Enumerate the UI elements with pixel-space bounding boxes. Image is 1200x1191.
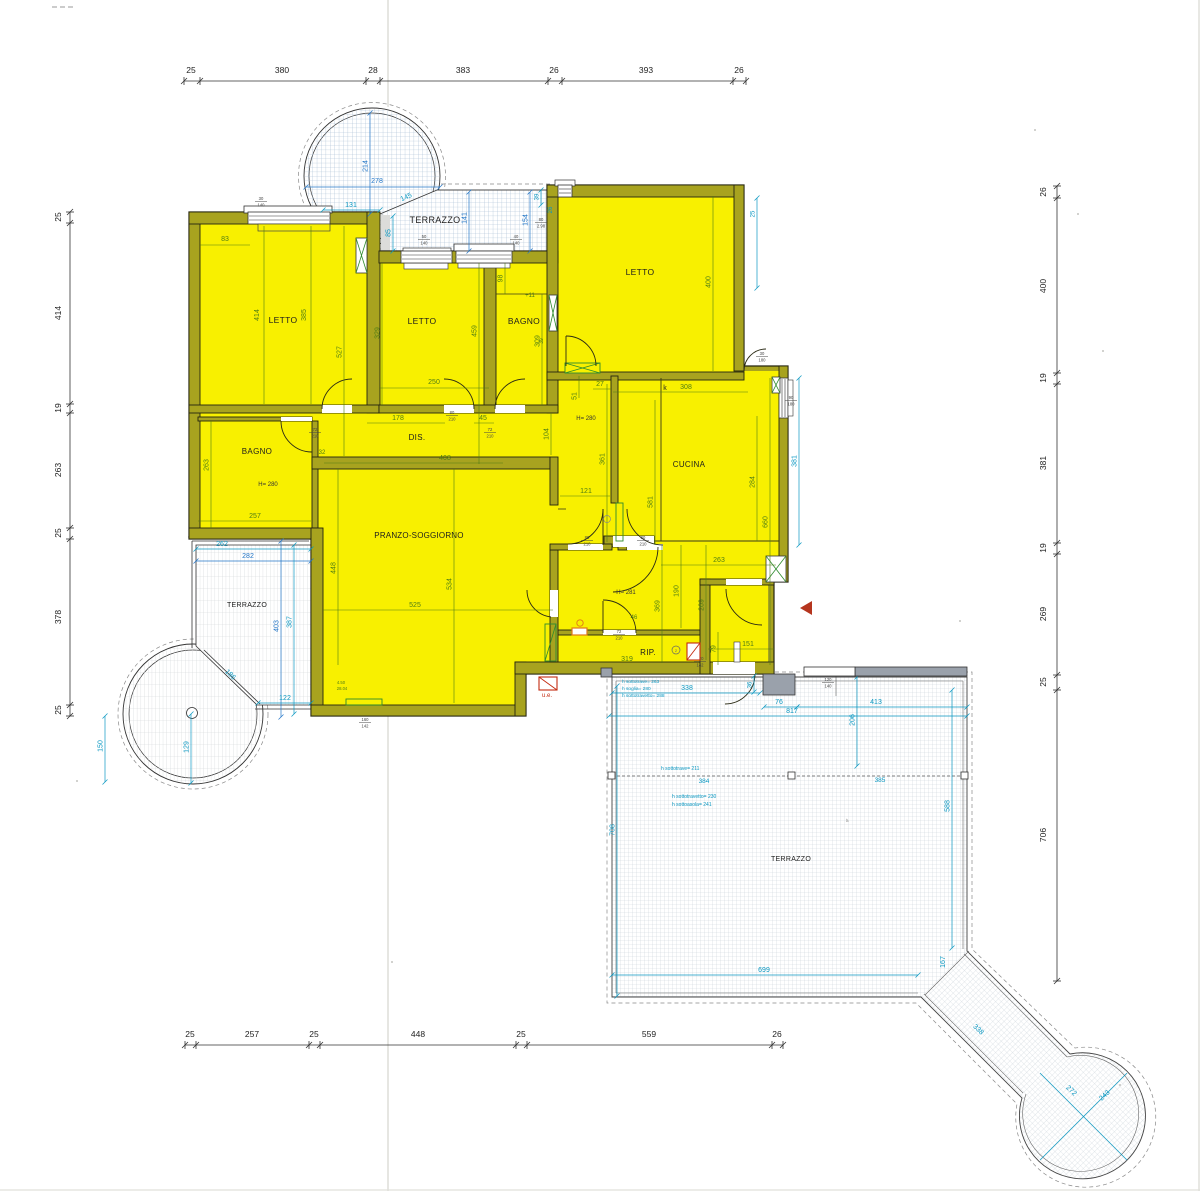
svg-text:79: 79	[711, 645, 718, 653]
svg-text:40: 40	[514, 234, 519, 239]
svg-text:4.50: 4.50	[337, 680, 346, 685]
svg-text:19: 19	[1038, 543, 1048, 553]
svg-text:206: 206	[850, 714, 857, 726]
svg-text:129: 129	[184, 741, 191, 753]
svg-text:RIP.: RIP.	[640, 648, 656, 657]
svg-text:25: 25	[1038, 677, 1048, 687]
svg-text:32: 32	[319, 450, 326, 456]
svg-text:DIS.: DIS.	[409, 433, 426, 442]
svg-text:660: 660	[763, 516, 770, 528]
svg-text:403: 403	[274, 620, 281, 632]
svg-text:26: 26	[734, 65, 744, 75]
svg-text:121: 121	[580, 488, 592, 495]
svg-text:180: 180	[788, 402, 796, 407]
svg-text:h sottotravetto= 288: h sottotravetto= 288	[622, 693, 665, 699]
svg-text:381: 381	[1038, 456, 1048, 470]
svg-text:25: 25	[53, 528, 63, 538]
svg-text:90: 90	[789, 395, 794, 400]
svg-text:527: 527	[337, 346, 344, 358]
svg-text:151: 151	[742, 641, 754, 648]
svg-text:25: 25	[53, 212, 63, 222]
svg-text:25: 25	[186, 65, 196, 75]
svg-text:361: 361	[600, 453, 607, 465]
svg-text:408: 408	[439, 455, 451, 462]
svg-text:160: 160	[362, 717, 370, 722]
svg-text:h sottotrave= 211: h sottotrave= 211	[661, 766, 700, 772]
svg-text:PRANZO-SOGGIORNO: PRANZO-SOGGIORNO	[374, 531, 463, 540]
svg-text:50: 50	[422, 234, 427, 239]
svg-text:150: 150	[98, 740, 105, 752]
svg-text:400: 400	[706, 276, 713, 288]
svg-text:80: 80	[585, 535, 590, 540]
svg-text:140: 140	[421, 241, 429, 246]
svg-text:214: 214	[363, 160, 370, 172]
svg-text:140: 140	[825, 684, 833, 689]
svg-text:CUCINA: CUCINA	[673, 460, 706, 469]
svg-text:448: 448	[331, 562, 338, 574]
svg-text:178: 178	[392, 415, 404, 422]
svg-text:80: 80	[641, 535, 646, 540]
svg-text:385: 385	[301, 309, 308, 321]
svg-text:210: 210	[449, 417, 457, 422]
svg-text:122: 122	[279, 695, 291, 702]
svg-text:30: 30	[760, 351, 765, 356]
svg-text:309: 309	[535, 335, 542, 347]
svg-text:104: 104	[544, 428, 551, 440]
svg-text:319: 319	[621, 656, 633, 663]
svg-text:381: 381	[792, 455, 799, 467]
svg-text:414: 414	[254, 309, 261, 321]
svg-text:142: 142	[362, 724, 370, 729]
svg-text:LETTO: LETTO	[269, 315, 298, 325]
svg-text:250: 250	[428, 379, 440, 386]
svg-text:706: 706	[1038, 828, 1048, 842]
svg-text:263: 263	[204, 459, 211, 471]
svg-text:80: 80	[450, 410, 455, 415]
svg-text:76: 76	[775, 699, 783, 706]
svg-text:45: 45	[479, 415, 487, 422]
svg-text:H= 280: H= 280	[258, 482, 278, 488]
svg-text:83: 83	[221, 236, 229, 243]
svg-text:387: 387	[287, 616, 294, 628]
svg-text:284: 284	[750, 476, 757, 488]
svg-text:26: 26	[1038, 187, 1048, 197]
svg-text:282: 282	[242, 553, 254, 560]
svg-text:2.98: 2.98	[537, 224, 546, 229]
svg-text:385: 385	[875, 777, 886, 784]
svg-text:154: 154	[523, 214, 530, 226]
svg-text:263: 263	[53, 463, 63, 477]
svg-text:36: 36	[748, 681, 754, 688]
svg-text:27: 27	[596, 381, 604, 388]
svg-text:25: 25	[751, 210, 757, 217]
svg-text:51: 51	[572, 392, 579, 400]
svg-text:80: 80	[539, 217, 544, 222]
svg-text:459: 459	[472, 325, 479, 337]
svg-text:72: 72	[488, 427, 493, 432]
svg-text:19: 19	[53, 403, 63, 413]
svg-text:H= 281: H= 281	[616, 590, 636, 596]
svg-text:413: 413	[870, 699, 882, 706]
svg-text:h sottoasola= 241: h sottoasola= 241	[672, 802, 712, 808]
svg-text:338: 338	[681, 685, 693, 692]
svg-text:85: 85	[386, 229, 393, 237]
svg-text:329: 329	[375, 327, 382, 339]
svg-text:708: 708	[610, 824, 617, 836]
svg-text:46: 46	[631, 615, 638, 621]
svg-text:581: 581	[648, 496, 655, 508]
svg-text:817: 817	[786, 708, 798, 715]
svg-text:h sottotravetto= 230: h sottotravetto= 230	[672, 794, 717, 800]
svg-text:26: 26	[548, 206, 554, 213]
svg-text:190: 190	[674, 585, 681, 597]
svg-text:278: 278	[371, 178, 383, 185]
svg-text:142: 142	[697, 663, 705, 668]
svg-text:h soglia= 280: h soglia= 280	[622, 686, 651, 692]
svg-text:h sottotrave= 263: h sottotrave= 263	[622, 679, 660, 685]
svg-text:25: 25	[53, 705, 63, 715]
svg-text:400: 400	[1038, 279, 1048, 293]
svg-text:369: 369	[655, 600, 662, 612]
svg-text:BAGNO: BAGNO	[508, 316, 540, 326]
svg-text:559: 559	[642, 1029, 656, 1039]
svg-text:210: 210	[616, 636, 624, 641]
svg-text:25: 25	[185, 1029, 195, 1039]
svg-text:26: 26	[772, 1029, 782, 1039]
svg-text:BAGNO: BAGNO	[242, 447, 272, 456]
svg-text:167: 167	[940, 956, 947, 968]
svg-text:TERRAZZO: TERRAZZO	[771, 856, 811, 863]
svg-text:257: 257	[249, 513, 261, 520]
svg-text:72: 72	[617, 629, 622, 634]
svg-text:TERRAZZO: TERRAZZO	[227, 602, 267, 609]
svg-text:140: 140	[258, 203, 266, 208]
svg-text:25: 25	[309, 1029, 319, 1039]
svg-text:699: 699	[758, 967, 770, 974]
svg-text:+11: +11	[525, 293, 535, 299]
svg-text:141: 141	[462, 212, 469, 224]
svg-text:378: 378	[53, 610, 63, 624]
svg-text:588: 588	[945, 800, 952, 812]
svg-text:u.e.: u.e.	[542, 693, 552, 699]
svg-text:393: 393	[639, 65, 653, 75]
svg-text:210: 210	[487, 434, 495, 439]
svg-text:140: 140	[513, 241, 521, 246]
svg-text:39: 39	[535, 193, 541, 200]
svg-text:131: 131	[345, 202, 357, 209]
svg-text:180: 180	[759, 358, 767, 363]
svg-text:72: 72	[313, 427, 318, 432]
svg-text:TERRAZZO: TERRAZZO	[410, 215, 461, 225]
svg-text:210: 210	[640, 542, 648, 547]
svg-text:28.04: 28.04	[337, 686, 348, 691]
svg-text:257: 257	[245, 1029, 259, 1039]
svg-text:269: 269	[699, 599, 706, 611]
svg-text:448: 448	[411, 1029, 425, 1039]
svg-text:30: 30	[259, 196, 264, 201]
svg-text:LETTO: LETTO	[408, 316, 437, 326]
svg-text:H= 280: H= 280	[576, 416, 596, 422]
svg-text:210: 210	[312, 434, 320, 439]
svg-text:263: 263	[713, 557, 725, 564]
svg-text:525: 525	[409, 602, 421, 609]
svg-text:19: 19	[1038, 373, 1048, 383]
svg-text:308: 308	[680, 384, 692, 391]
svg-text:414: 414	[53, 306, 63, 320]
svg-text:269: 269	[1038, 607, 1048, 621]
svg-text:384: 384	[699, 778, 710, 785]
svg-text:380: 380	[275, 65, 289, 75]
svg-text:262: 262	[216, 541, 228, 548]
svg-text:k: k	[663, 385, 667, 392]
svg-text:26: 26	[549, 65, 559, 75]
svg-text:120: 120	[825, 677, 833, 682]
svg-text:534: 534	[447, 578, 454, 590]
svg-text:98: 98	[498, 275, 505, 283]
svg-text:25: 25	[516, 1029, 526, 1039]
svg-text:28: 28	[368, 65, 378, 75]
svg-text:383: 383	[456, 65, 470, 75]
svg-text:LETTO: LETTO	[626, 267, 655, 277]
svg-text:210: 210	[584, 542, 592, 547]
